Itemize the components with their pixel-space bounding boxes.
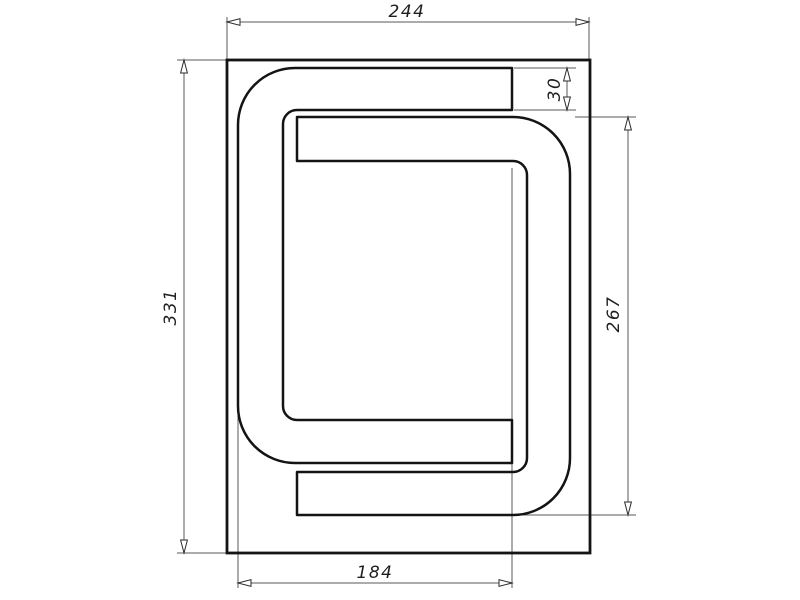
dimension-channel-width: 30 [514,68,576,110]
arrowhead-right [576,19,589,26]
arrowhead-right [499,580,512,587]
drawing-sheet: 244 331 30 267 [0,0,800,600]
plate-outline [227,60,590,553]
arrowhead-bottom [625,502,632,515]
dim-label-overall-width: 244 [389,2,426,22]
dim-label-inner-channel-height: 267 [604,296,624,333]
drawing-canvas: 244 331 30 267 [0,0,800,600]
dimension-bottom-span: 184 [238,168,512,588]
arrowhead-top [625,117,632,130]
dimension-inner-channel-height: 267 [518,117,636,515]
dim-label-channel-width: 30 [545,77,565,102]
arrowhead-left [227,19,240,26]
arrowhead-bottom [181,540,188,553]
arrowhead-top [181,60,188,73]
dimension-overall-height: 331 [161,60,226,553]
arrowhead-left [238,580,251,587]
dim-label-bottom-span: 184 [357,563,394,583]
outer-channel [238,68,512,463]
dim-label-overall-height: 331 [161,289,181,326]
inner-channel [297,117,570,515]
dimension-overall-width: 244 [227,2,589,59]
